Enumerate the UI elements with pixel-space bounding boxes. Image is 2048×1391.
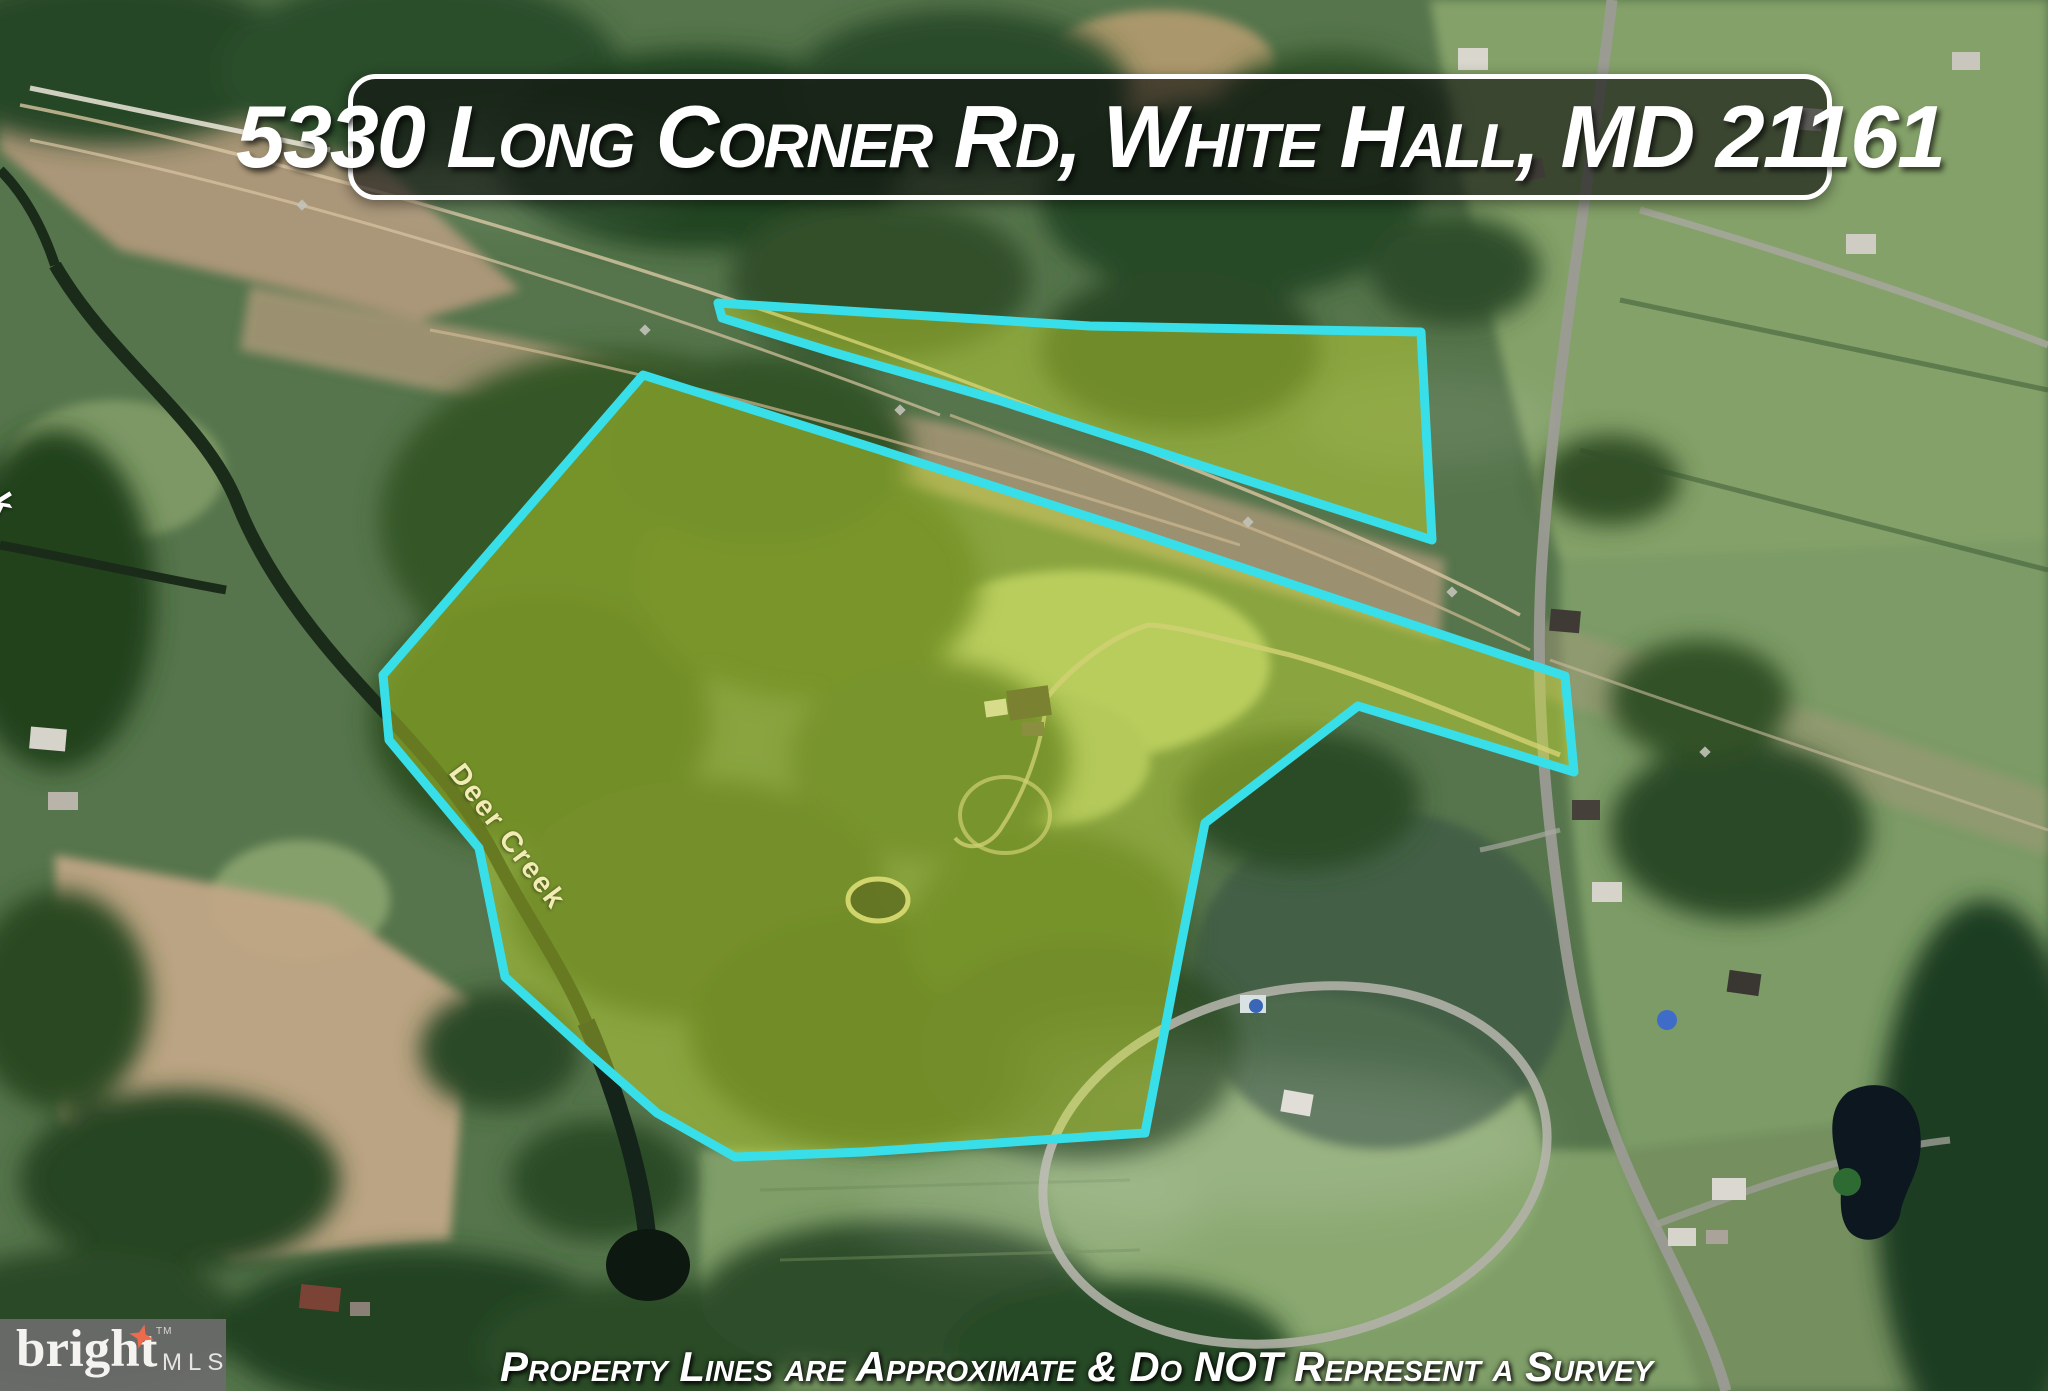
trademark-symbol: TM: [156, 1326, 172, 1337]
address-banner: 5330 Long Corner Rd, White Hall, MD 2116…: [348, 74, 1832, 200]
brand-wordmark: bright: [16, 1323, 157, 1376]
listing-map-image: 5330 Long Corner Rd, White Hall, MD 2116…: [0, 0, 2048, 1391]
address-title: 5330 Long Corner Rd, White Hall, MD 2116…: [236, 86, 1944, 188]
pond-bottom-left: [606, 1229, 690, 1301]
mls-wordmark: MLS: [162, 1349, 229, 1377]
satellite-map: [0, 0, 2048, 1391]
pond-blue-small: [1657, 1010, 1677, 1030]
bright-mls-watermark: bright TM MLS: [0, 1319, 226, 1391]
survey-disclaimer: Property Lines are Approximate & Do NOT …: [500, 1346, 1500, 1388]
